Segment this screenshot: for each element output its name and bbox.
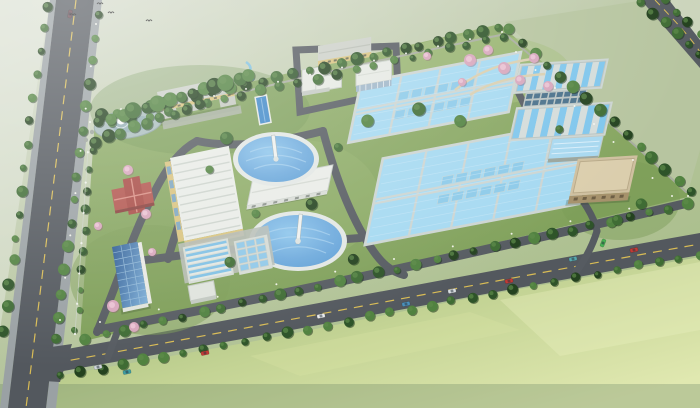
atmospheric-haze — [0, 0, 700, 408]
plant-aerial-rendering — [0, 0, 700, 408]
rendering-canvas — [0, 0, 700, 408]
